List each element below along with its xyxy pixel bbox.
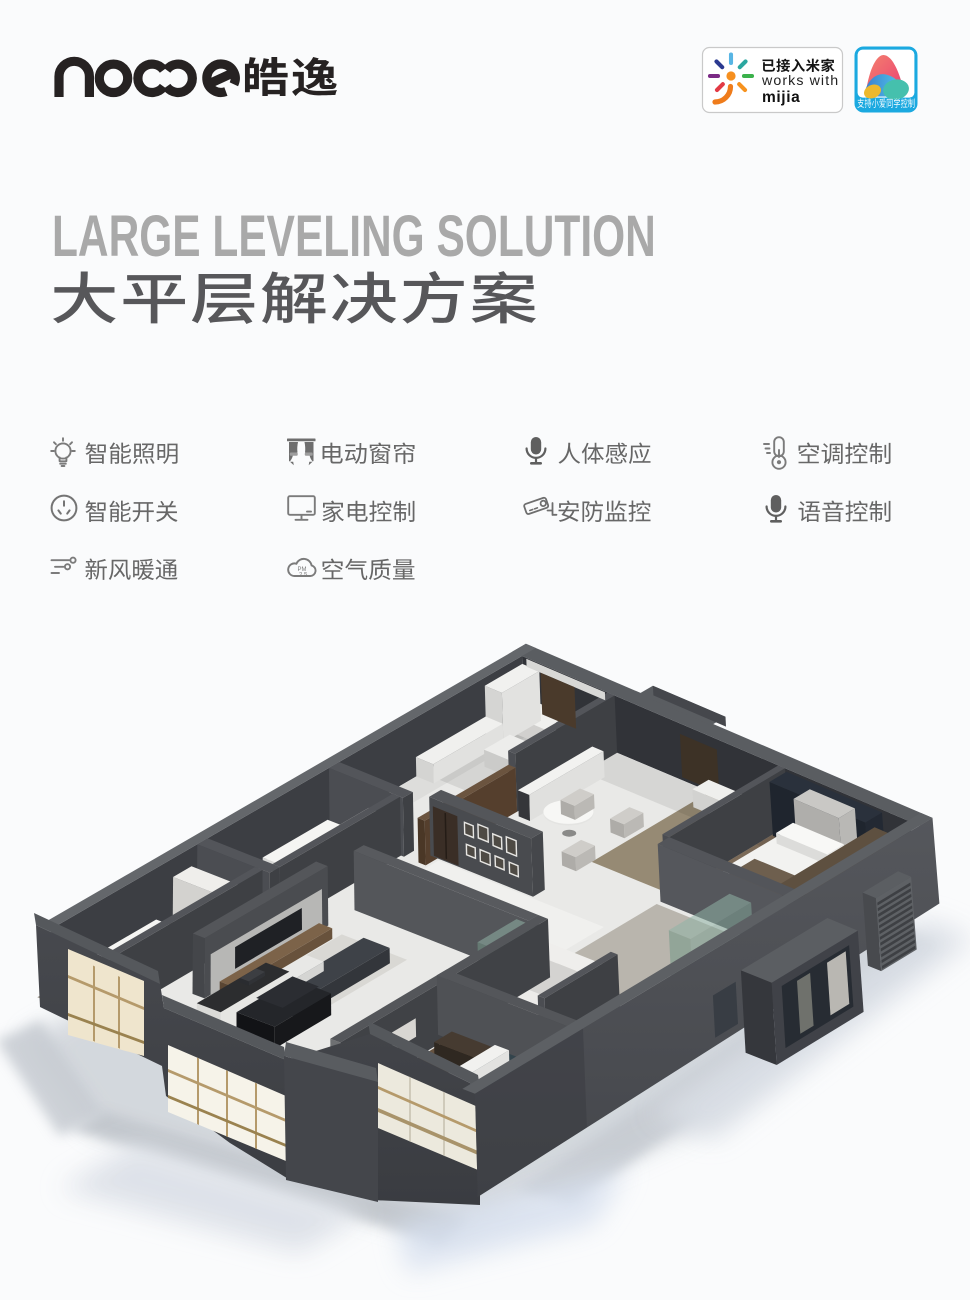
svg-text:2.5: 2.5 [299, 573, 308, 579]
